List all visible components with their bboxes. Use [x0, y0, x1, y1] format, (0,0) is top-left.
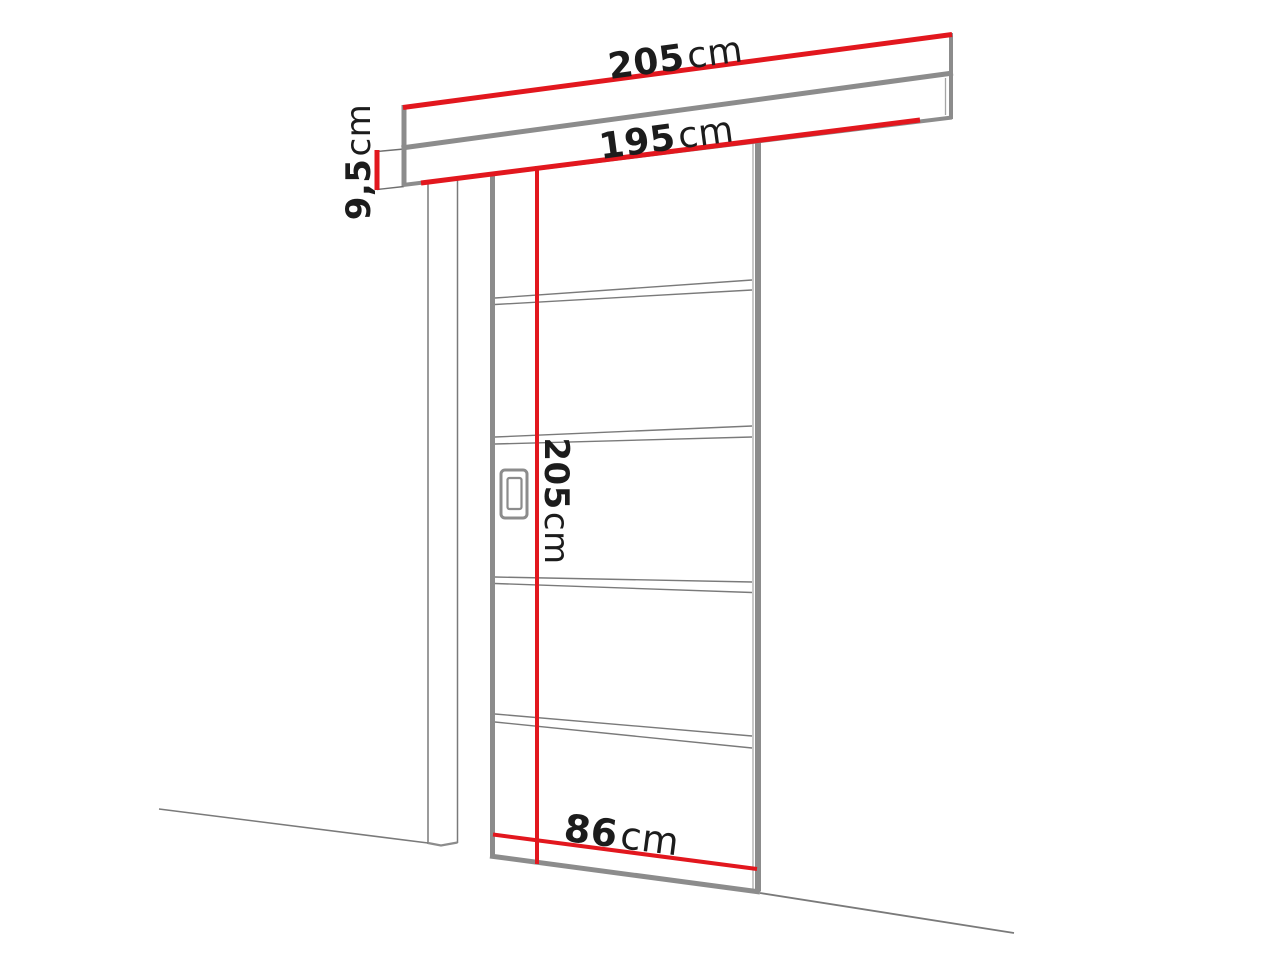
floor-line-left [159, 809, 428, 843]
label-door-height: 205cm [536, 437, 576, 564]
label-track-length-value: 205 [606, 37, 687, 88]
label-rail-length-value: 195 [597, 117, 678, 168]
diagram-canvas: 205cm 195cm 9,5cm 205cm 86cm [0, 0, 1280, 960]
door-panel-line [495, 722, 752, 748]
door-panel-line [495, 290, 752, 305]
label-rail-length-unit: cm [676, 109, 737, 157]
label-track-height-value: 9,5 [339, 159, 379, 221]
door-handle-inner [508, 478, 522, 509]
wall-bottom-edge [428, 843, 458, 846]
dimension-labels: 205cm 195cm 9,5cm 205cm 86cm [339, 29, 745, 864]
door-handle [501, 470, 527, 518]
door-panel-line [495, 714, 752, 736]
track-endcap-bottom-edge [377, 187, 404, 190]
floor-line-right [760, 893, 1014, 933]
label-door-width-unit: cm [618, 813, 682, 864]
label-door-height-value: 205 [536, 437, 576, 509]
label-door-width-value: 86 [561, 806, 620, 857]
door-panel-line [495, 584, 752, 593]
label-track-height-unit: cm [339, 104, 379, 157]
track-endcap-top-edge [377, 149, 404, 152]
label-track-length-unit: cm [685, 29, 746, 77]
door-panel-line [495, 577, 752, 582]
door-panel-lines [495, 280, 752, 748]
label-door-height-unit: cm [536, 512, 576, 565]
sliding-door-diagram: 205cm 195cm 9,5cm 205cm 86cm [0, 0, 1280, 960]
door-bottom-edge [490, 856, 760, 892]
label-door-width: 86cm [561, 806, 682, 865]
door-panel-line [495, 280, 752, 298]
label-track-length: 205cm [606, 29, 746, 88]
door-panel-line [495, 426, 752, 437]
door-panel-line [495, 437, 752, 444]
label-track-height: 9,5cm [339, 104, 379, 221]
door [490, 139, 760, 892]
dimension-lines [377, 35, 952, 870]
